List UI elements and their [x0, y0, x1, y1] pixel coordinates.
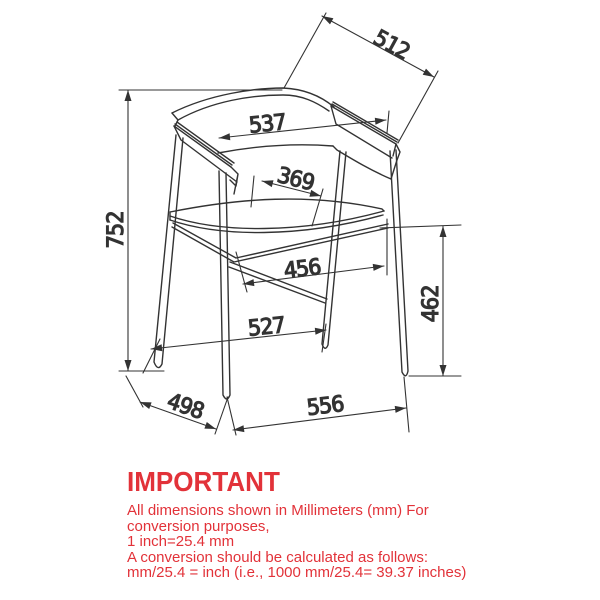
dimension-label-527: 527 — [247, 313, 286, 342]
notice-block: IMPORTANT All dimensions shown in Millim… — [127, 466, 567, 581]
front-left-leg — [219, 171, 230, 399]
dimension-label-512: 512 — [369, 26, 413, 66]
dimension-369: 369 — [251, 163, 323, 226]
dimension-462: 462 — [380, 225, 461, 376]
right-armrest-face — [331, 106, 400, 179]
seat-front-edge — [170, 211, 384, 233]
dimension-label-537: 537 — [248, 110, 287, 139]
dimension-label-462: 462 — [419, 286, 444, 323]
technical-drawing-page: 752 512 537 369 — [0, 0, 600, 600]
notice-title: IMPORTANT — [127, 466, 536, 498]
dimension-label-556: 556 — [305, 392, 345, 421]
dimension-label-456: 456 — [282, 255, 322, 284]
dimension-527: 527 — [143, 313, 326, 373]
dimension-556: 556 — [227, 377, 409, 435]
front-right-leg — [390, 150, 408, 376]
dimension-label-369: 369 — [275, 163, 317, 196]
rear-right-leg — [322, 151, 346, 348]
notice-line: 1 inch=25.4 mm — [127, 534, 567, 550]
backrest-bottom-curve — [218, 145, 333, 153]
notice-line: A conversion should be calculated as fol… — [127, 550, 567, 566]
seat-back-curve — [170, 199, 384, 220]
dimension-498: 498 — [126, 376, 228, 434]
right-shell-panel — [333, 146, 391, 179]
notice-line: All dimensions shown in Millimeters (mm)… — [127, 503, 567, 519]
dimension-label-498: 498 — [164, 389, 207, 425]
notice-line: conversion purposes, — [127, 519, 567, 535]
rear-left-leg — [154, 135, 183, 368]
notice-line: mm/25.4 = inch (i.e., 1000 mm/25.4= 39.3… — [127, 565, 567, 581]
dimension-label-752: 752 — [104, 212, 129, 249]
